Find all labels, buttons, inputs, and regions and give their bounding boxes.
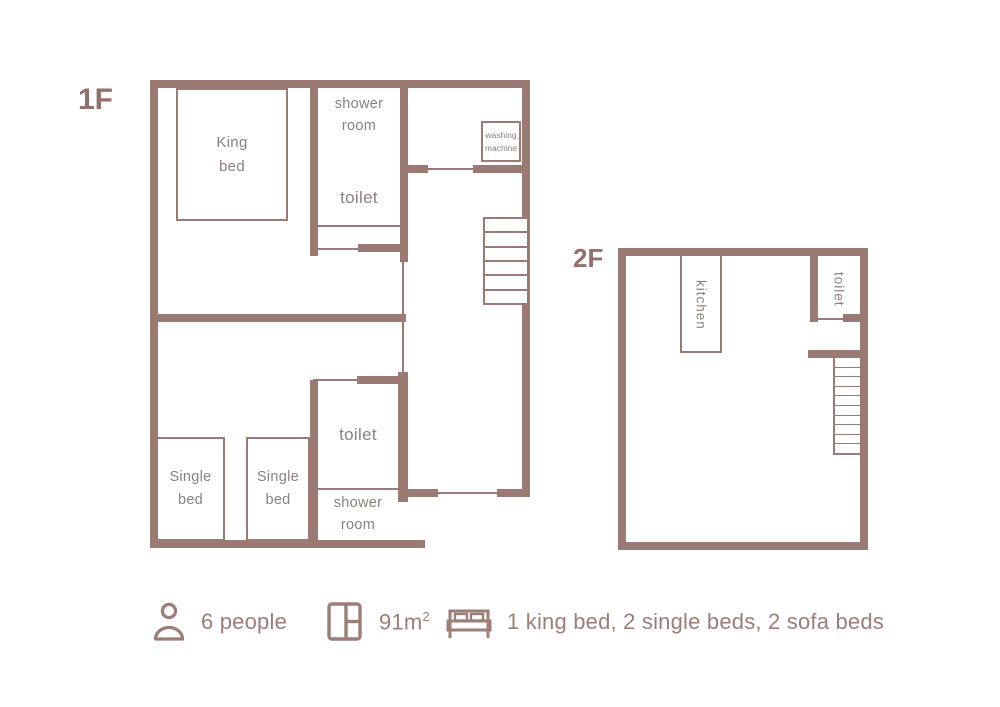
door-line bbox=[438, 492, 497, 494]
wall-segment bbox=[618, 542, 868, 550]
bed-icon bbox=[446, 605, 492, 639]
stair-step bbox=[485, 248, 527, 262]
wall-segment bbox=[618, 248, 626, 550]
floor-label-2f: 2F bbox=[573, 243, 603, 274]
stairs-2f bbox=[833, 358, 860, 455]
legend-people: 6 people bbox=[151, 600, 287, 644]
person-icon bbox=[151, 601, 187, 643]
wall-segment bbox=[810, 256, 818, 322]
room-label-washing-machine: washing machine bbox=[481, 121, 521, 162]
wall-thin bbox=[402, 322, 404, 372]
wall-segment bbox=[400, 80, 408, 262]
wall-thin bbox=[402, 262, 404, 316]
wall-segment bbox=[808, 350, 868, 358]
stair-step bbox=[835, 435, 860, 445]
stair-step bbox=[835, 368, 860, 378]
room-label-king-bed: King bed bbox=[176, 88, 288, 221]
wall-segment bbox=[618, 248, 868, 256]
wall-segment bbox=[150, 540, 425, 548]
stair-step bbox=[835, 444, 860, 453]
wall-segment bbox=[408, 165, 428, 173]
floor-area-icon bbox=[327, 602, 363, 642]
wall-segment bbox=[408, 489, 438, 497]
stair-step bbox=[835, 406, 860, 416]
stair-step bbox=[485, 262, 527, 276]
floor-plan-canvas: 1F 2F bbox=[0, 0, 1000, 707]
stair-step bbox=[835, 377, 860, 387]
floor-plan-2f: kitchen toilet bbox=[618, 248, 868, 550]
room-label-shower-room-top: shower room bbox=[318, 88, 400, 144]
stair-step bbox=[485, 291, 527, 303]
room-label-single-bed-right: Single bed bbox=[246, 437, 310, 541]
room-label-toilet-2f: toilet bbox=[818, 258, 860, 320]
wall-segment bbox=[150, 80, 530, 88]
room-label-kitchen: kitchen bbox=[680, 256, 722, 353]
wall-segment bbox=[473, 165, 522, 173]
stair-step bbox=[835, 425, 860, 435]
room-label-toilet-bottom: toilet bbox=[318, 380, 398, 489]
legend-beds: 1 king bed, 2 single beds, 2 sofa beds bbox=[446, 600, 884, 644]
legend-people-text: 6 people bbox=[201, 609, 287, 635]
room-label-single-bed-left: Single bed bbox=[156, 437, 225, 541]
legend-beds-text: 1 king bed, 2 single beds, 2 sofa beds bbox=[507, 609, 884, 635]
wall-segment bbox=[860, 248, 868, 550]
wall-segment bbox=[310, 80, 318, 256]
floor-label-1f: 1F bbox=[78, 83, 113, 117]
stair-step bbox=[485, 276, 527, 290]
door-line bbox=[428, 168, 473, 170]
room-label-toilet-top: toilet bbox=[318, 146, 400, 249]
floor-plan-1f: King bed shower room toilet washing mach… bbox=[150, 80, 530, 548]
legend-area: 91m2 bbox=[327, 600, 430, 644]
room-label-shower-room-bottom: shower room bbox=[318, 489, 398, 540]
stair-step bbox=[835, 416, 860, 426]
stair-step bbox=[835, 387, 860, 397]
stair-step bbox=[485, 219, 527, 233]
wall-segment bbox=[398, 372, 408, 502]
stair-step bbox=[485, 233, 527, 247]
stair-step bbox=[835, 396, 860, 406]
stairs-1f bbox=[483, 217, 529, 305]
wall-segment bbox=[497, 489, 530, 497]
legend-area-text: 91m2 bbox=[379, 609, 430, 635]
wall-segment bbox=[150, 314, 406, 322]
stair-step bbox=[835, 358, 860, 368]
wall-segment bbox=[310, 380, 318, 548]
